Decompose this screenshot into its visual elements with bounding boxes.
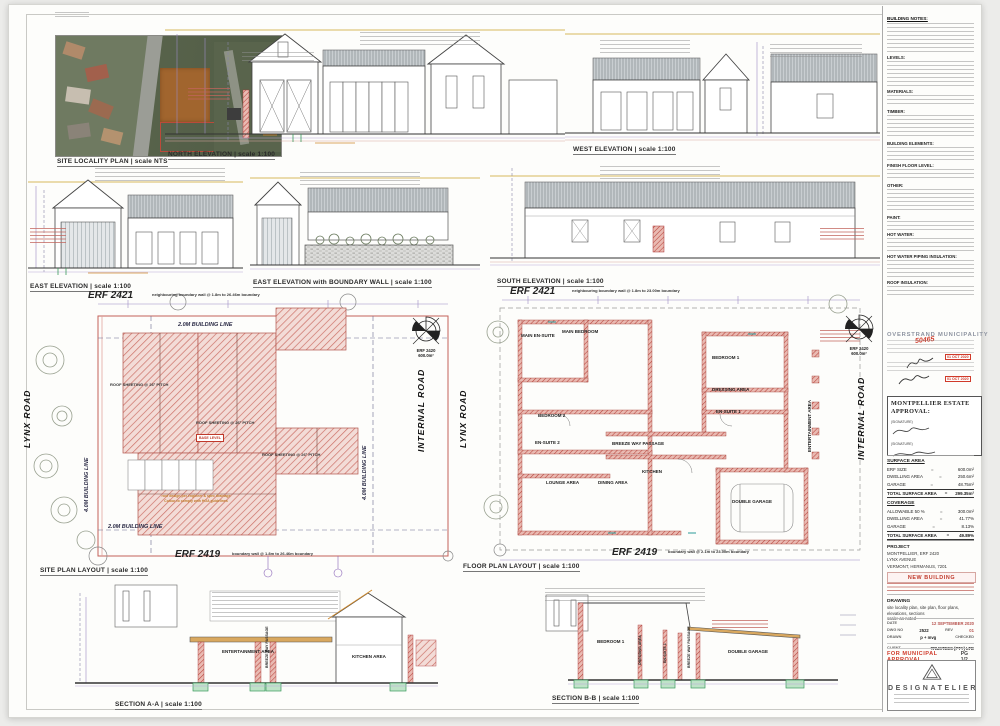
row-value: 8.13% (962, 524, 974, 529)
table-row-total: TOTAL SURFACE AREA=299.35m² (887, 489, 974, 498)
table-row-total: TOTAL SURFACE AREA=49.89% (887, 531, 974, 540)
rev-value: 01 (969, 628, 974, 633)
annotation-text (212, 592, 338, 620)
section-b-ensuite1-label: EN-SUITE 1 (664, 643, 668, 663)
table-row: DWELLING AREA=41.77% (887, 516, 974, 521)
disclaimer-red-text (887, 583, 974, 591)
roof-design-note-line1: roof design per engineer & spec drainage (150, 494, 242, 499)
stamp-date-2: 01 OCT 2020 (945, 376, 971, 382)
room-label-breezeway: BREEZE WAY PASSAGE (612, 442, 664, 447)
project-title: PROJECT (887, 545, 974, 550)
dwg-value: 2522 (919, 628, 928, 633)
section-a-kitchen-label: KITCHEN AREA (352, 655, 386, 660)
room-label-bedroom1: BEDROOM 1 (712, 356, 739, 361)
table-row: ALLOWABLE 50 %=300.0m² (887, 509, 974, 514)
section-b-breezeway-label: BREEZE WAY PASSAGE (688, 626, 692, 668)
caption-section-b: SECTION B-B | scale 1:100 (552, 695, 639, 704)
roof-sheeting-label: ROOF SHEETING @ 26° PITCH (196, 420, 254, 425)
row-eq: = (928, 482, 936, 487)
project-line: VERMONT, HERMANUS, 7201 (887, 564, 974, 570)
roof-design-note: roof design per engineer & spec drainage… (150, 494, 242, 503)
signature-label: (SIGNATURE) (891, 420, 978, 424)
notes-body (887, 61, 974, 87)
caption-east-boundary-elevation: EAST ELEVATION with BOUNDARY WALL | scal… (253, 279, 432, 288)
note-heading: HOT WATER PIPING INSULATION: (887, 254, 974, 259)
municipality-stamp: OVERSTRAND MUNICIPALITY 50465 01 OCT 202… (887, 332, 974, 390)
row-value: 600.0m² (958, 467, 974, 472)
notes-body (887, 95, 974, 107)
site-plan-road-right-label: INTERNAL ROAD (416, 369, 426, 452)
room-label-ensuite2: EN-SUITE 2 (535, 441, 560, 446)
coverage-table: COVERAGE ALLOWABLE 50 %=300.0m² DWELLING… (887, 498, 974, 540)
project-block: PROJECT MONTPELLIER, ERF 2420 LYNX AVENU… (887, 540, 974, 570)
annotation-text (545, 588, 705, 602)
note-heading: MATERIALS: (887, 89, 974, 94)
estate-approval-title: MONTPELLIER ESTATE APPROVAL: (891, 400, 978, 416)
room-label-kitchen: KITCHEN (642, 470, 662, 475)
aerial-house (65, 86, 91, 104)
notes-body (887, 115, 974, 139)
row-eq: = (936, 474, 944, 479)
note-heading: FINISH FLOOR LEVEL: (887, 163, 974, 168)
north-arrow-icon (844, 314, 874, 344)
titleblock-row-date: DATE 12 SEPTEMBER 2020 (887, 621, 974, 626)
roof-sheeting-label: ROOF SHEETING @ 26° PITCH (110, 382, 168, 387)
surface-area-title: SURFACE AREA (887, 459, 974, 464)
site-plan-road-left-label: LYNX ROAD (22, 390, 32, 448)
row-value: 48.75m² (958, 482, 974, 487)
row-eq: = (928, 467, 936, 472)
row-value: 41.77% (959, 516, 974, 521)
compass-erf-label: ERF 2420 600.0m² (404, 348, 448, 359)
site-plan-erf-bottom-note: boundary wall @ 1.8m to 26.46m boundary (232, 552, 313, 557)
floor-plan-road-left-label: LYNX ROAD (458, 390, 468, 448)
table-row: DWELLING AREA=250.6m² (887, 474, 974, 479)
annotation-text (360, 32, 480, 48)
row-label: GARAGE (887, 482, 906, 487)
note-heading: OTHER: (887, 183, 974, 188)
room-label-entertainment: ENTERTAINMENT AREA (808, 400, 813, 452)
row-eq: = (937, 516, 945, 521)
floor-plan-erf-bottom-label: ERF 2419 (612, 547, 657, 558)
site-plan-erf-top-label: ERF 2421 (88, 290, 133, 301)
stamp-date-1: 01 OCT 2020 (945, 354, 971, 360)
notes-body (887, 189, 974, 213)
frame-line-top (26, 14, 976, 15)
drawing-info-items: site locality plan, site plan, floor pla… (887, 605, 974, 616)
table-row: ERF SIZE=600.0m² (887, 467, 974, 472)
notes-body (887, 286, 974, 295)
annotation-red-text (712, 620, 768, 630)
designatelier-logo-icon (922, 664, 942, 680)
titleblock: DATE 12 SEPTEMBER 2020 DWG NO 2522 REV 0… (887, 618, 974, 651)
building-notes: BUILDING NOTES: LEVELS: MATERIALS: TIMBE… (887, 16, 974, 295)
north-arrow-icon (411, 316, 441, 346)
row-label: DWELLING AREA (887, 474, 923, 479)
note-heading: PAINT: (887, 215, 974, 220)
section-a-breezeway-label: BREEZE WAY PASSAGE (266, 626, 270, 668)
signature-icon (897, 372, 931, 388)
notes-body (887, 260, 974, 278)
row-eq: = (942, 491, 950, 496)
titleblock-row-drawn: DRAWN p + mvg CHECKED (887, 635, 974, 640)
room-label-main-ensuite: MAIN EN-SUITE (521, 334, 555, 339)
notes-body (887, 147, 974, 161)
table-row: GARAGE=48.75m² (887, 482, 974, 487)
drawn-label: DRAWN (887, 635, 901, 640)
annotation-text (600, 166, 720, 179)
new-building-badge: NEW BUILDING (887, 572, 976, 583)
note-heading: ROOF INSULATION: (887, 280, 974, 285)
notes-body (887, 23, 974, 53)
row-eq: = (930, 524, 938, 529)
coverage-title: COVERAGE (887, 501, 974, 506)
rev-label: REV (945, 628, 953, 633)
floor-plan-erf-top-note: neighbouring boundary wall @ 1.8m to 23.… (572, 289, 680, 294)
surface-area-table: SURFACE AREA ERF SIZE=600.0m² DWELLING A… (887, 455, 974, 498)
annotation-text (770, 44, 862, 59)
row-value: 49.89% (959, 533, 974, 538)
row-value: 299.35m² (955, 491, 974, 496)
roof-sheeting-label: ROOF SHEETING @ 26° PITCH (262, 452, 320, 457)
caption-west-elevation: WEST ELEVATION | scale 1:100 (573, 146, 676, 155)
annotation-red-text (188, 88, 230, 102)
building-line-right-label: 4.0M BUILDING LINE (362, 446, 368, 500)
section-b-bedroom1-label: BEDROOM 1 (597, 640, 624, 645)
row-label: DWELLING AREA (887, 516, 923, 521)
base-level-box: BASE LEVEL (196, 434, 224, 442)
logo-contact-lines (894, 694, 969, 704)
room-label-dressing: DRESSING AREA (712, 388, 749, 393)
titleblock-row-dwg: DWG NO 2522 REV 01 (887, 628, 974, 633)
compass-erf-area: 600.0m² (404, 353, 448, 358)
floor-plan-erf-top-label: ERF 2421 (510, 286, 555, 297)
frame-line-left (26, 14, 27, 710)
floor-plan-erf-bottom-note: boundary wall @ 2.1m to 23.00m boundary (668, 550, 749, 555)
drawing-info-title: DRAWING (887, 599, 974, 604)
annotation-red-text (820, 228, 864, 242)
annotation-red-text (30, 228, 66, 244)
drawn-value: p + mvg (920, 635, 936, 640)
row-value: 250.6m² (958, 474, 974, 479)
row-label: TOTAL SURFACE AREA (887, 491, 937, 496)
notes-body (887, 238, 974, 252)
room-label-bedroom2: BEDROOM 2 (538, 414, 565, 419)
row-label: TOTAL SURFACE AREA (887, 533, 937, 538)
room-label-garage: DOUBLE GARAGE (732, 500, 772, 505)
row-eq: = (937, 509, 945, 514)
checked-label: CHECKED (955, 635, 974, 640)
room-label-main-bedroom: MAIN BEDROOM (562, 330, 598, 335)
designatelier-logo: DESIGNATELIER (887, 660, 976, 711)
note-heading: LEVELS: (887, 55, 974, 60)
room-label-ensuite1: EN-SUITE 1 (716, 410, 741, 415)
caption-floor-plan: FLOOR PLAN LAYOUT | scale 1:100 (463, 563, 580, 572)
date-value: 12 SEPTEMBER 2020 (932, 621, 974, 626)
building-notes-title: BUILDING NOTES: (887, 16, 974, 21)
row-label: ALLOWABLE 50 % (887, 509, 925, 514)
section-b-dressing-label: DRESSING AREA (639, 635, 643, 665)
building-line-top-label: 2.0M BUILDING LINE (178, 322, 232, 328)
site-plan-erf-top-note: neighbouring boundary wall @ 1.8m to 26.… (152, 293, 260, 298)
scanned-architectural-sheet: { "captions": { "site_locality": "SITE L… (0, 0, 1000, 726)
signature-icon (891, 425, 931, 437)
annotation-text (300, 172, 420, 186)
compass-erf-area: 600.0m² (837, 351, 881, 356)
room-label-dining: DINING AREA (598, 481, 628, 486)
notes-body (887, 169, 974, 181)
annotation-text (95, 168, 225, 182)
row-label: GARAGE (887, 524, 906, 529)
row-label: ERF SIZE (887, 467, 907, 472)
dwg-label: DWG NO (887, 628, 903, 633)
row-value: 300.0m² (958, 509, 974, 514)
room-label-lounge: LOUNGE AREA (546, 481, 579, 486)
row-eq: = (944, 533, 952, 538)
note-heading: BUILDING ELEMENTS: (887, 141, 974, 146)
building-line-bottom-label: 2.0M BUILDING LINE (108, 524, 162, 530)
floor-plan-road-right-label: INTERNAL ROAD (856, 377, 866, 460)
roof-design-note-line2: Colour to comply with HOA guidelines (150, 499, 242, 504)
site-plan-erf-bottom-label: ERF 2419 (175, 549, 220, 560)
compass-erf-label: ERF 2420 600.0m² (837, 346, 881, 357)
building-line-left-label: 4.0M BUILDING LINE (84, 458, 90, 512)
date-label: DATE (887, 621, 897, 626)
caption-section-a: SECTION A-A | scale 1:100 (115, 701, 202, 710)
caption-site-plan: SITE PLAN LAYOUT | scale 1:100 (40, 567, 148, 576)
annotation-text (242, 52, 314, 63)
note-heading: HOT WATER: (887, 232, 974, 237)
section-b-garage-label: DOUBLE GARAGE (728, 650, 768, 655)
caption-north-elevation: NORTH ELEVATION | scale 1:100 (168, 151, 275, 160)
signature-label: (SIGNATURE) (891, 442, 978, 446)
site-plan-drawing (28, 288, 460, 582)
notes-body (887, 221, 974, 230)
table-row: GARAGE=8.13% (887, 524, 974, 529)
designatelier-logo-name: DESIGNATELIER (888, 685, 975, 692)
note-heading: TIMBER: (887, 109, 974, 114)
annotation-text (600, 40, 690, 53)
estate-approval-box: MONTPELLIER ESTATE APPROVAL: (SIGNATURE)… (887, 396, 982, 456)
